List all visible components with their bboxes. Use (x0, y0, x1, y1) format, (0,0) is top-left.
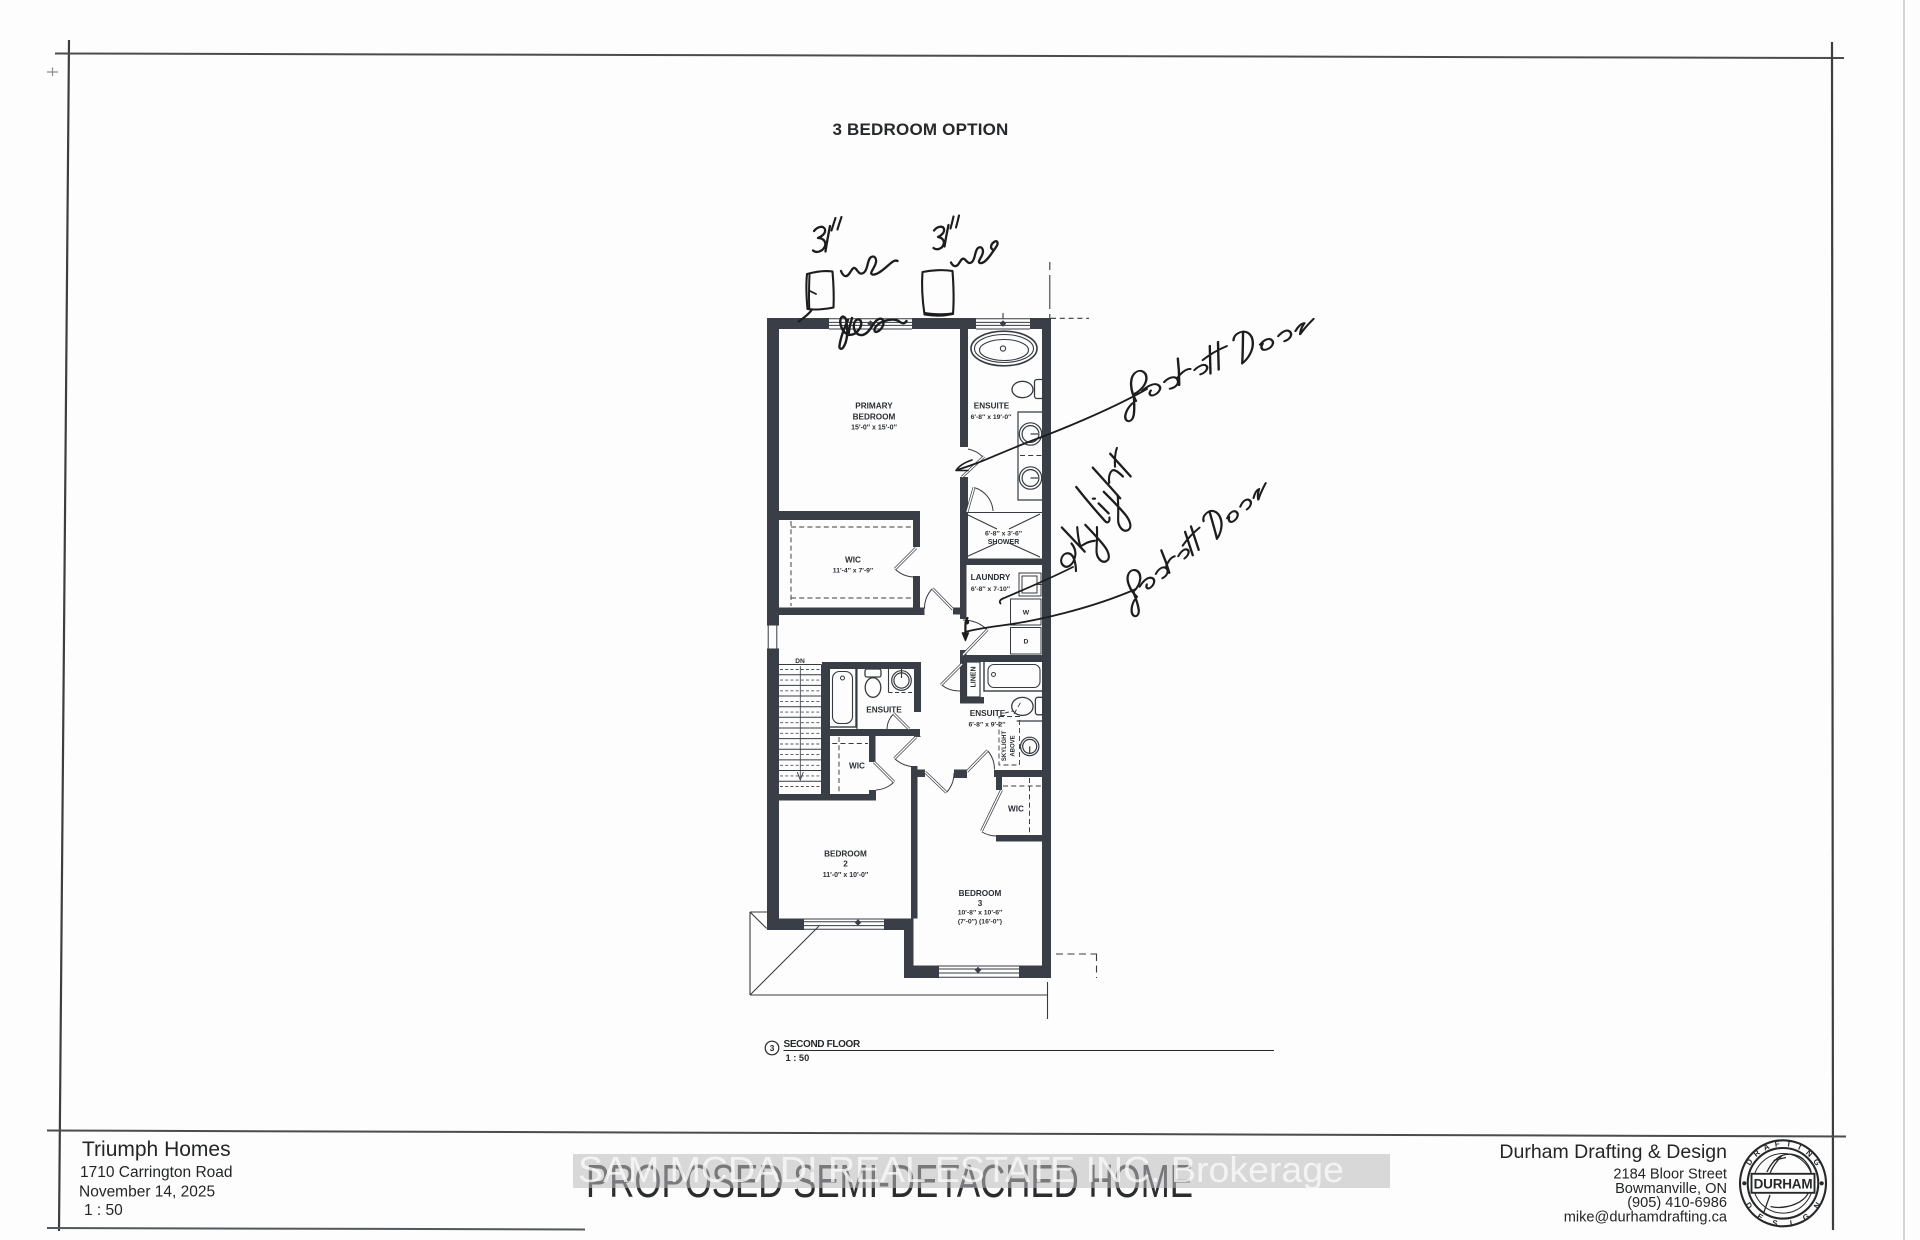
svg-text:WIC: WIC (845, 556, 861, 565)
svg-text:2: 2 (843, 860, 848, 869)
svg-text:1 : 50: 1 : 50 (84, 1202, 123, 1219)
svg-text:WIC: WIC (1008, 805, 1024, 814)
svg-text:6′-8″ x 7-10″: 6′-8″ x 7-10″ (971, 586, 1011, 593)
svg-text:DN: DN (795, 658, 805, 665)
svg-text:11′-4″ x 7′-9″: 11′-4″ x 7′-9″ (833, 568, 874, 575)
svg-text:SHOWER: SHOWER (988, 539, 1020, 546)
svg-text:1710 Carrington Road: 1710 Carrington Road (80, 1164, 233, 1181)
svg-text:6′-8″ x 19′-0″: 6′-8″ x 19′-0″ (971, 414, 1012, 421)
svg-text:BEDROOM: BEDROOM (959, 889, 1002, 898)
svg-text:ENSUITE: ENSUITE (970, 709, 1006, 718)
svg-text:3 BEDROOM OPTION: 3 BEDROOM OPTION (832, 120, 1008, 139)
svg-text:SKYLIGHT: SKYLIGHT (1002, 731, 1008, 762)
svg-text:DURHAM: DURHAM (1754, 1177, 1813, 1192)
svg-text:SECOND FLOOR: SECOND FLOOR (784, 1039, 861, 1050)
svg-text:ABOVE: ABOVE (1011, 735, 1017, 756)
svg-text:11′-0″ x 10′-0″: 11′-0″ x 10′-0″ (823, 872, 869, 879)
svg-text:LAUNDRY: LAUNDRY (971, 573, 1011, 582)
svg-text:ENSUITE: ENSUITE (974, 402, 1010, 411)
svg-text:BEDROOM: BEDROOM (853, 413, 896, 422)
svg-text:15′-0″ x 15′-0″: 15′-0″ x 15′-0″ (851, 425, 898, 432)
svg-text:PRIMARY: PRIMARY (855, 402, 893, 411)
svg-text:6′-8″ x 9′-2″: 6′-8″ x 9′-2″ (969, 722, 1007, 729)
svg-text:3: 3 (978, 899, 983, 908)
svg-text:BEDROOM: BEDROOM (824, 850, 867, 859)
svg-text:3: 3 (770, 1043, 775, 1053)
svg-text:ENSUITE: ENSUITE (866, 706, 902, 715)
svg-text:mike@durhamdrafting.ca: mike@durhamdrafting.ca (1564, 1210, 1728, 1226)
svg-text:SAM MCDADI REAL ESTATE INC. B: SAM MCDADI REAL ESTATE INC. Brokerage (578, 1149, 1344, 1190)
svg-text:1 : 50: 1 : 50 (786, 1053, 810, 1063)
svg-text:6′-8″ x 3′-6″: 6′-8″ x 3′-6″ (985, 531, 1023, 538)
svg-text:D: D (1024, 639, 1029, 646)
svg-text:10′-8″ x 10′-6″: 10′-8″ x 10′-6″ (958, 910, 1003, 917)
svg-text:WIC: WIC (849, 762, 865, 771)
svg-text:T: T (1786, 1139, 1792, 1149)
svg-text:I: I (1797, 1143, 1803, 1152)
svg-text:November 14, 2025: November 14, 2025 (79, 1184, 215, 1201)
svg-text:Triumph Homes: Triumph Homes (82, 1138, 231, 1161)
svg-text:Durham Drafting & Design: Durham Drafting & Design (1499, 1141, 1727, 1163)
svg-text:W: W (1023, 610, 1030, 617)
svg-text:I: I (1789, 1219, 1793, 1228)
svg-text:LINEN: LINEN (971, 667, 978, 688)
svg-text:(7′-0″) (16′-0″): (7′-0″) (16′-0″) (958, 919, 1002, 926)
